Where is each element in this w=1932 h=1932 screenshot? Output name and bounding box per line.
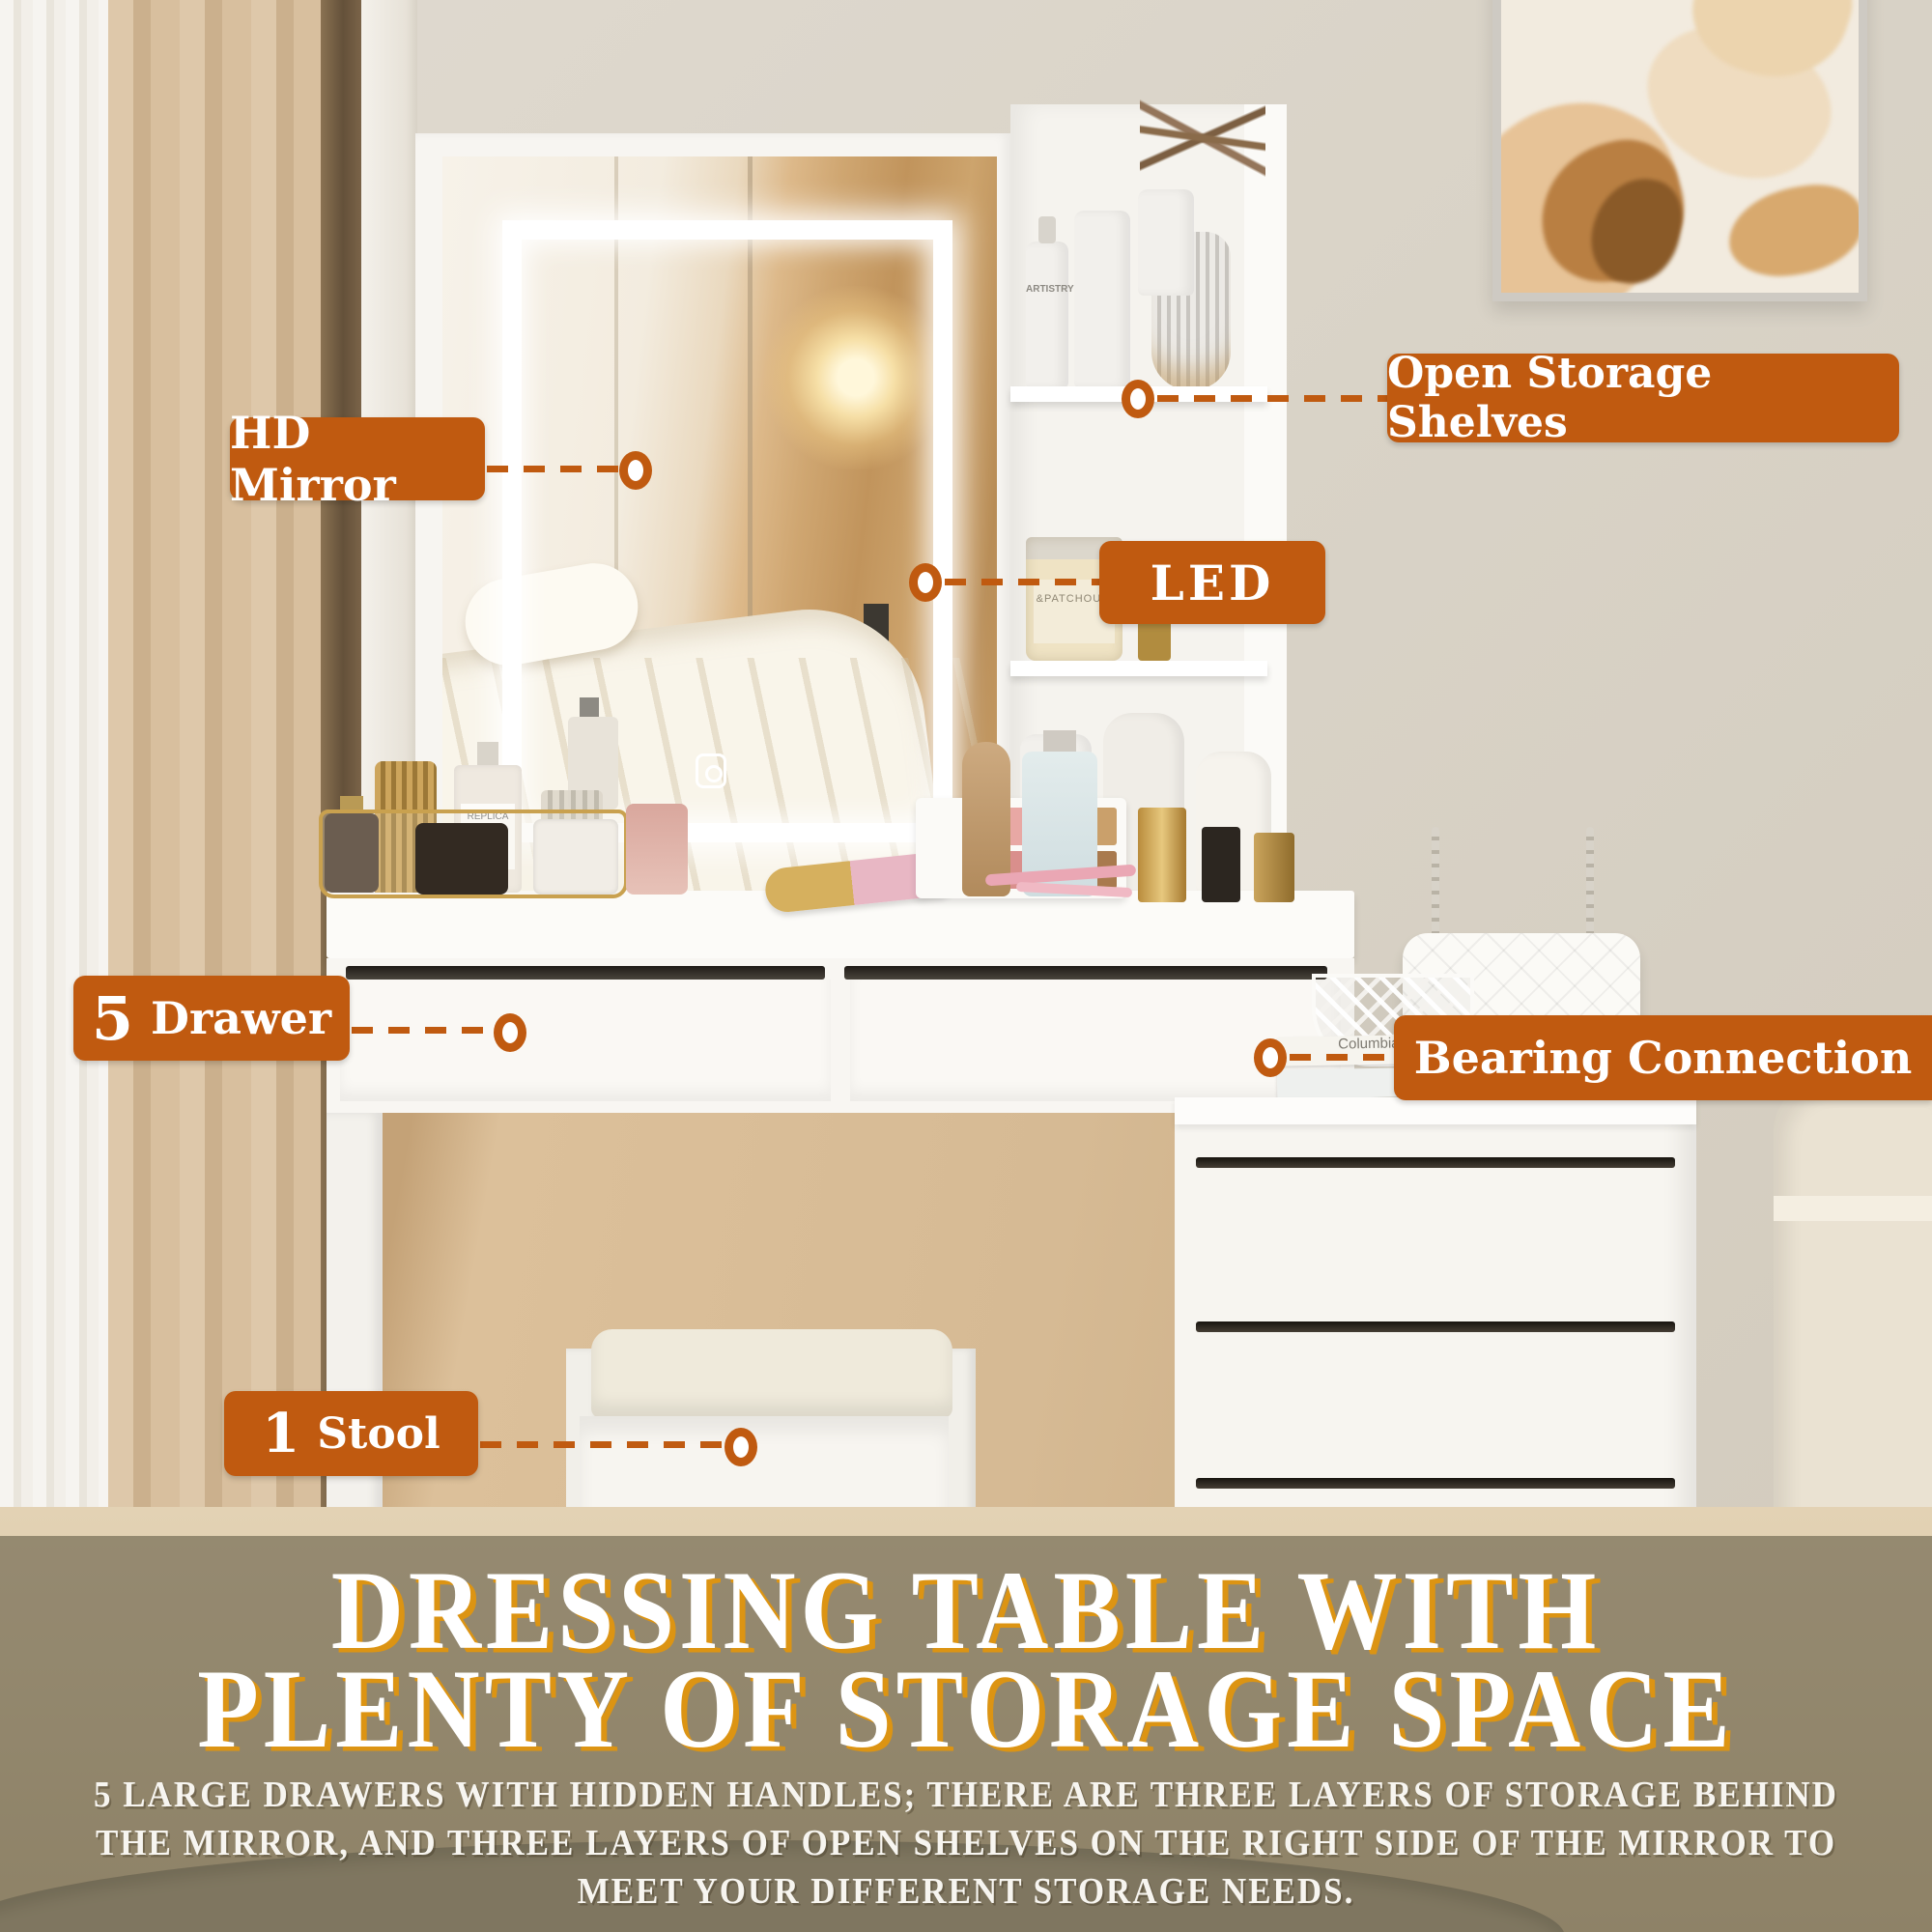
drawer-count: 5	[92, 983, 133, 1054]
stool-count: 1	[262, 1402, 299, 1465]
drawer-label: Drawer	[151, 992, 331, 1044]
leader-dot-open-shelves	[1122, 380, 1154, 418]
leader-line-bearing	[1290, 1054, 1394, 1061]
vanity-drawer-left	[340, 980, 831, 1101]
leader-dot-led	[909, 563, 942, 602]
cabinet-top	[1175, 1097, 1696, 1124]
product-infographic: ARTISTRY &PATCHOULI ARTISTRY REPLICA	[0, 0, 1932, 1932]
drawer-gap	[844, 966, 1327, 980]
leader-dot-hd-mirror	[619, 451, 652, 490]
black-mascara	[1202, 827, 1240, 902]
leader-line-open-shelves	[1157, 395, 1387, 402]
side-drawer-cabinet	[1175, 1097, 1696, 1544]
mirror-touch-control-icon	[696, 753, 726, 788]
leader-dot-stool	[724, 1428, 757, 1466]
spray-cap	[1038, 216, 1056, 243]
beige-curtain	[108, 0, 321, 1565]
nightstand-top	[1774, 1196, 1932, 1221]
bottle-label: ARTISTRY	[1026, 284, 1068, 295]
banner-heading-line2: PLENTY OF STORAGE SPACE	[0, 1645, 1932, 1774]
drawer-gap	[1196, 1157, 1675, 1168]
drawer-gap	[1196, 1478, 1675, 1489]
callout-open-storage-shelves: Open Storage Shelves	[1387, 354, 1899, 442]
callout-hd-mirror: HD Mirror	[230, 417, 485, 500]
leader-line-led	[945, 579, 1099, 585]
gold-lipstick	[1138, 808, 1186, 902]
gold-lipstick	[1254, 833, 1294, 902]
wall-art	[1492, 0, 1867, 301]
leader-dot-bearing	[1254, 1038, 1287, 1077]
cosmetic-tube	[1138, 189, 1194, 296]
handbag-chain	[1432, 827, 1439, 943]
banner-body-line2: THE MIRROR, AND THREE LAYERS OF OPEN SHE…	[0, 1822, 1932, 1864]
stool-label: Stool	[317, 1409, 440, 1459]
callout-5-drawer: 5 Drawer	[73, 976, 350, 1061]
cosmetic-tube	[1074, 211, 1130, 388]
drawer-gap	[1196, 1321, 1675, 1332]
pink-cream-jar	[626, 804, 688, 895]
white-cream-jar	[533, 819, 618, 895]
desk-left-panel	[327, 1113, 383, 1544]
vanity-drawer-band	[327, 958, 1354, 1113]
sheer-curtain	[0, 0, 108, 1565]
stool-cushion	[591, 1329, 952, 1418]
callout-led: LED	[1099, 541, 1325, 624]
handbag-chain	[1586, 827, 1594, 943]
nightstand	[1774, 1084, 1932, 1544]
leader-line-drawer	[352, 1027, 493, 1034]
leader-line-stool	[480, 1441, 722, 1448]
shelf-board-middle	[1010, 661, 1267, 676]
dark-cream-jar	[415, 823, 508, 895]
drawer-gap	[346, 966, 825, 980]
banner-body-line1: 5 LARGE DRAWERS WITH HIDDEN HANDLES; THE…	[0, 1774, 1932, 1816]
leader-line-hd-mirror	[487, 466, 618, 472]
leader-dot-drawer	[494, 1013, 526, 1052]
banner-body-line3: MEET YOUR DIFFERENT STORAGE NEEDS.	[0, 1870, 1932, 1913]
cosmetic-tube: ARTISTRY	[1026, 241, 1068, 388]
callout-bearing-connection: Bearing Connection	[1394, 1015, 1932, 1100]
callout-1-stool: 1 Stool	[224, 1391, 478, 1476]
paint-stroke	[1722, 179, 1867, 284]
